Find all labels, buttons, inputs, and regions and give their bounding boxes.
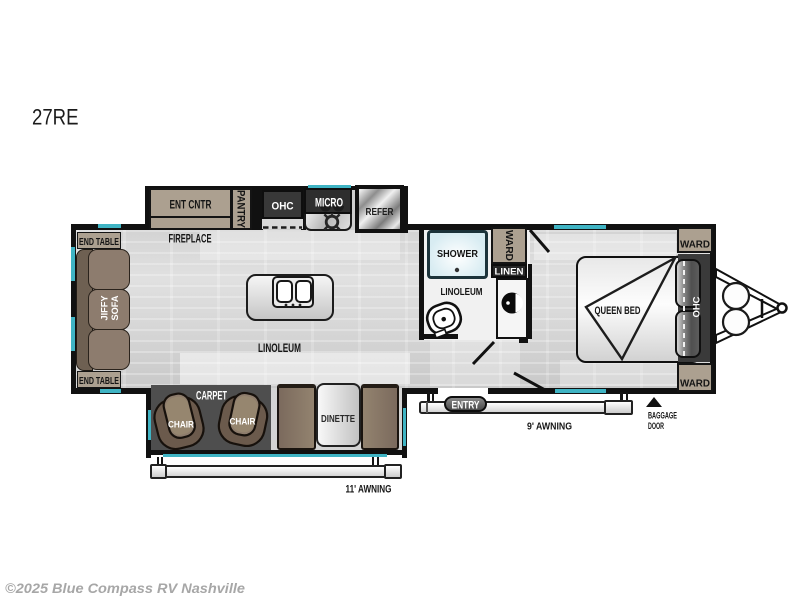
svg-text:11' AWNING: 11' AWNING	[346, 484, 392, 496]
svg-text:CHAIR: CHAIR	[168, 420, 194, 431]
svg-text:WARD: WARD	[680, 379, 710, 390]
svg-text:OHC: OHC	[692, 296, 703, 317]
svg-text:END TABLE: END TABLE	[79, 375, 119, 387]
svg-text:CARPET: CARPET	[196, 391, 227, 403]
svg-text:LINOLEUM: LINOLEUM	[258, 343, 301, 355]
svg-text:©2025 Blue Compass RV Nashvill: ©2025 Blue Compass RV Nashville	[5, 581, 246, 596]
svg-text:OHC: OHC	[272, 201, 294, 213]
svg-text:9' AWNING: 9' AWNING	[527, 421, 572, 433]
svg-text:BAGGAGE: BAGGAGE	[648, 411, 677, 422]
svg-text:QUEEN BED: QUEEN BED	[595, 305, 641, 317]
svg-text:REFER: REFER	[366, 207, 395, 218]
svg-text:END TABLE: END TABLE	[79, 236, 119, 248]
svg-text:DINETTE: DINETTE	[321, 413, 355, 425]
svg-text:DOOR: DOOR	[648, 421, 664, 432]
svg-text:JIFFY: JIFFY	[100, 296, 110, 321]
svg-text:PANTRY: PANTRY	[235, 190, 247, 229]
svg-text:SOFA: SOFA	[110, 295, 120, 320]
svg-text:CHAIR: CHAIR	[230, 417, 256, 428]
svg-text:WARD: WARD	[503, 230, 514, 261]
svg-text:ENT CNTR: ENT CNTR	[170, 200, 212, 212]
svg-text:LINEN: LINEN	[495, 267, 524, 277]
svg-text:WARD: WARD	[680, 240, 710, 251]
svg-text:SHOWER: SHOWER	[437, 248, 478, 260]
svg-text:FIREPLACE: FIREPLACE	[169, 234, 212, 246]
svg-text:LINOLEUM: LINOLEUM	[441, 287, 483, 298]
svg-text:27RE: 27RE	[32, 105, 79, 130]
svg-text:ENTRY: ENTRY	[452, 400, 481, 412]
svg-text:MICRO: MICRO	[315, 196, 343, 210]
